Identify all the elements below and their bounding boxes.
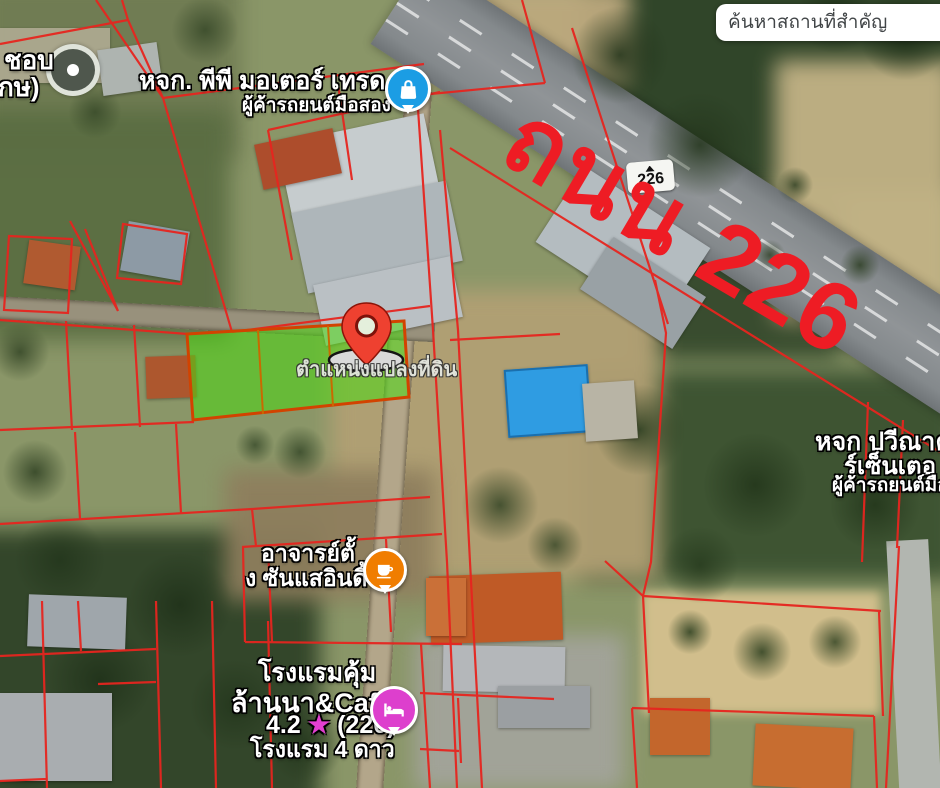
orange-roof-complex xyxy=(426,578,466,636)
cafe-marker[interactable] xyxy=(363,548,407,592)
label-top-left-partial-1: ชอบ xyxy=(4,46,54,75)
storage-tank xyxy=(46,44,100,96)
coffee-cup-icon xyxy=(373,558,397,582)
hotel-marker[interactable] xyxy=(370,686,418,734)
label-plot-location: ตำแหน่งแปลงที่ดิน xyxy=(296,359,457,381)
bed-icon xyxy=(381,697,407,723)
blue-roof-building xyxy=(504,364,593,438)
label-pp-motor-name: หจก. พีพี มอเตอร์ เทรด xyxy=(139,68,385,96)
label-hotel-4: โรงแรม 4 ดาว xyxy=(250,737,395,762)
hotel-rating-value: 4.2 xyxy=(266,711,301,739)
label-ajarn-1: อาจารย์ตั้ xyxy=(261,541,355,566)
label-top-left-partial-2: กษ) xyxy=(0,73,40,102)
concrete-pad xyxy=(582,380,638,441)
search-input[interactable] xyxy=(716,4,940,41)
label-ajarn-2: ง ซันแสอินดี้ xyxy=(245,566,367,591)
label-paweena-3: ผู้ค้ารถยนต์มือสอ xyxy=(832,476,940,497)
search-box[interactable] xyxy=(716,4,940,41)
star-icon: ★ xyxy=(308,711,330,739)
label-hotel-1: โรงแรมคุ้ม xyxy=(258,660,376,688)
orange-roof-house xyxy=(23,240,81,291)
orange-roof-house xyxy=(145,355,196,399)
orange-roof-house xyxy=(650,698,710,755)
gray-roof-house xyxy=(498,686,590,728)
orange-roof-house xyxy=(752,723,853,788)
gray-roof-house xyxy=(0,693,112,781)
gray-roof-house xyxy=(27,594,127,649)
shopping-bag-icon xyxy=(396,77,421,102)
shopping-marker[interactable] xyxy=(385,66,431,112)
label-pp-motor-subtitle: ผู้ค้ารถยนต์มือสอง xyxy=(242,96,391,117)
map-canvas[interactable]: ชอบ กษ) หจก. พีพี มอเตอร์ เทรด ผู้ค้ารถย… xyxy=(0,0,940,788)
gray-roof-house xyxy=(120,221,190,281)
